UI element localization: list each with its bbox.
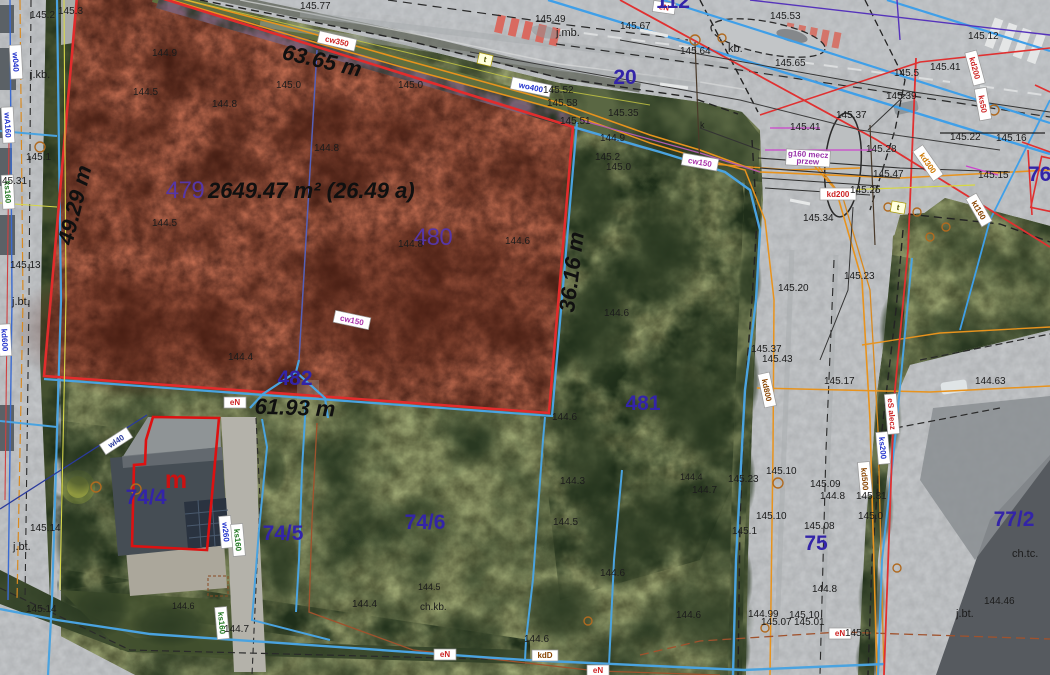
svg-text:74/4: 74/4: [126, 486, 167, 509]
svg-text:479: 479: [166, 177, 205, 204]
svg-text:144.9: 144.9: [152, 48, 177, 59]
svg-text:ch.kb.: ch.kb.: [420, 602, 447, 613]
svg-text:k: k: [700, 120, 705, 130]
svg-text:145.01: 145.01: [794, 617, 825, 628]
svg-text:j.mb.: j.mb.: [555, 27, 580, 39]
svg-text:145.0: 145.0: [845, 628, 870, 639]
svg-text:76: 76: [1028, 163, 1050, 186]
svg-text:144.6: 144.6: [552, 412, 577, 423]
svg-text:145.15: 145.15: [978, 170, 1009, 181]
svg-text:j.bt.: j.bt.: [955, 608, 974, 620]
svg-text:przew: przew: [796, 156, 820, 166]
svg-text:145.31: 145.31: [856, 491, 887, 502]
svg-text:145.10: 145.10: [766, 466, 797, 477]
svg-text:74/6: 74/6: [405, 511, 446, 534]
svg-text:145.34: 145.34: [803, 213, 834, 224]
svg-text:145.41: 145.41: [930, 62, 961, 73]
svg-text:w260: w260: [220, 521, 231, 543]
svg-text:144.6: 144.6: [505, 236, 530, 247]
svg-text:145.41: 145.41: [790, 122, 821, 133]
svg-text:145.1: 145.1: [732, 526, 757, 537]
svg-text:144.8: 144.8: [820, 491, 845, 502]
svg-text:145.14: 145.14: [26, 604, 57, 615]
svg-text:w040: w040: [10, 51, 20, 73]
svg-text:61.93 m: 61.93 m: [254, 394, 336, 422]
svg-text:eN: eN: [593, 666, 603, 675]
svg-text:145.43: 145.43: [762, 354, 793, 365]
svg-text:j.bt.: j.bt.: [11, 296, 30, 308]
svg-text:145.53: 145.53: [770, 11, 801, 22]
svg-text:144.7: 144.7: [224, 624, 249, 635]
svg-text:145.28: 145.28: [866, 144, 897, 155]
svg-text:77/2: 77/2: [994, 508, 1035, 531]
svg-text:2649.47 m² (26.49 a): 2649.47 m² (26.49 a): [207, 178, 415, 203]
svg-text:145.13: 145.13: [10, 260, 41, 271]
svg-text:74/5: 74/5: [263, 522, 304, 545]
svg-text:eN: eN: [835, 629, 845, 638]
svg-text:145.39: 145.39: [886, 91, 917, 102]
svg-text:145.2: 145.2: [30, 10, 55, 21]
svg-text:144.9: 144.9: [600, 133, 625, 144]
svg-text:145.0: 145.0: [606, 162, 631, 173]
svg-text:145.58: 145.58: [547, 98, 578, 109]
svg-text:75: 75: [804, 532, 828, 555]
svg-text:144.5: 144.5: [133, 87, 158, 98]
svg-text:145.35: 145.35: [608, 108, 639, 119]
svg-text:112: 112: [656, 0, 690, 13]
svg-text:145.23: 145.23: [728, 474, 759, 485]
svg-text:481: 481: [625, 392, 660, 415]
svg-text:144.8: 144.8: [212, 99, 237, 110]
svg-text:145.3: 145.3: [58, 6, 83, 17]
svg-text:145.67: 145.67: [620, 21, 651, 32]
svg-text:eN: eN: [230, 398, 240, 407]
svg-text:144.6: 144.6: [676, 610, 701, 621]
svg-text:144.8: 144.8: [812, 584, 837, 595]
svg-text:kd200: kd200: [827, 190, 850, 199]
svg-text:144.5: 144.5: [418, 582, 441, 592]
svg-text:144.8: 144.8: [398, 239, 423, 250]
svg-text:eN: eN: [440, 650, 450, 659]
svg-text:45.31: 45.31: [2, 176, 27, 187]
svg-text:145.20: 145.20: [778, 283, 809, 294]
svg-text:144.63: 144.63: [975, 376, 1006, 387]
svg-text:145.16: 145.16: [996, 133, 1027, 144]
svg-text:144.5: 144.5: [152, 218, 177, 229]
svg-text:m: m: [165, 466, 187, 494]
svg-text:145.23: 145.23: [844, 271, 875, 282]
svg-text:145.52: 145.52: [543, 85, 574, 96]
svg-text:145.22: 145.22: [950, 132, 981, 143]
svg-text:144.6: 144.6: [600, 568, 625, 579]
svg-text:144.6: 144.6: [604, 308, 629, 319]
svg-text:j.kb.: j.kb.: [29, 69, 50, 81]
svg-text:482: 482: [277, 367, 312, 390]
svg-text:145.0: 145.0: [398, 80, 423, 91]
svg-text:kd600: kd600: [0, 328, 10, 352]
svg-text:20: 20: [613, 66, 636, 89]
svg-text:145.10: 145.10: [756, 511, 787, 522]
svg-text:145.0: 145.0: [276, 80, 301, 91]
svg-text:145.37: 145.37: [836, 110, 867, 121]
svg-text:145.09: 145.09: [810, 479, 841, 490]
svg-text:145.64: 145.64: [680, 46, 711, 57]
svg-text:145.51: 145.51: [560, 116, 591, 127]
svg-text:145.0: 145.0: [858, 511, 883, 522]
svg-text:144.5: 144.5: [553, 517, 578, 528]
svg-text:145.49: 145.49: [535, 14, 566, 25]
svg-text:144.6: 144.6: [172, 601, 195, 611]
svg-text:144.4: 144.4: [228, 352, 253, 363]
svg-text:wA160: wA160: [2, 111, 12, 138]
svg-text:kdD: kdD: [537, 651, 552, 660]
svg-text:145.65: 145.65: [775, 58, 806, 69]
svg-text:145.07: 145.07: [761, 617, 792, 628]
svg-text:144.7: 144.7: [692, 485, 717, 496]
svg-text:144.6: 144.6: [524, 634, 549, 645]
svg-text:145.5: 145.5: [894, 68, 919, 79]
svg-text:145.08: 145.08: [804, 521, 835, 532]
svg-text:145.47: 145.47: [873, 169, 904, 180]
svg-text:145.77: 145.77: [300, 1, 331, 12]
svg-text:145.12: 145.12: [968, 31, 999, 42]
svg-text:ch.tc.: ch.tc.: [1012, 548, 1038, 560]
svg-text:kb.: kb.: [728, 43, 743, 55]
svg-text:144.8: 144.8: [314, 143, 339, 154]
svg-text:145.17: 145.17: [824, 376, 855, 387]
svg-text:144.3: 144.3: [560, 476, 585, 487]
svg-text:145.1: 145.1: [26, 152, 51, 163]
svg-text:145.14: 145.14: [30, 523, 61, 534]
svg-text:144.46: 144.46: [984, 596, 1015, 607]
svg-text:144.4: 144.4: [680, 472, 703, 482]
svg-text:145.25: 145.25: [850, 185, 881, 196]
svg-text:j.bt.: j.bt.: [12, 541, 31, 553]
svg-text:144.4: 144.4: [352, 599, 377, 610]
